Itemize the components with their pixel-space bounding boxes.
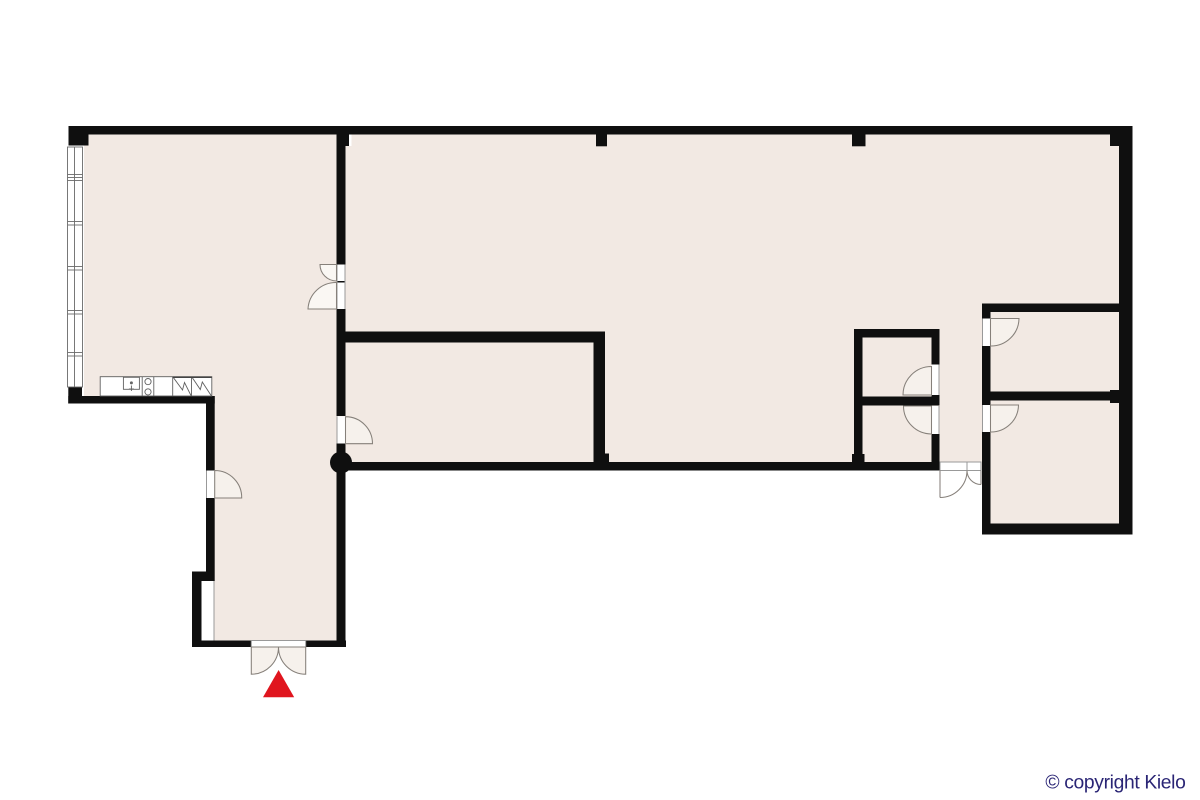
svg-text:© copyright Kielo: © copyright Kielo [1045,773,1185,794]
